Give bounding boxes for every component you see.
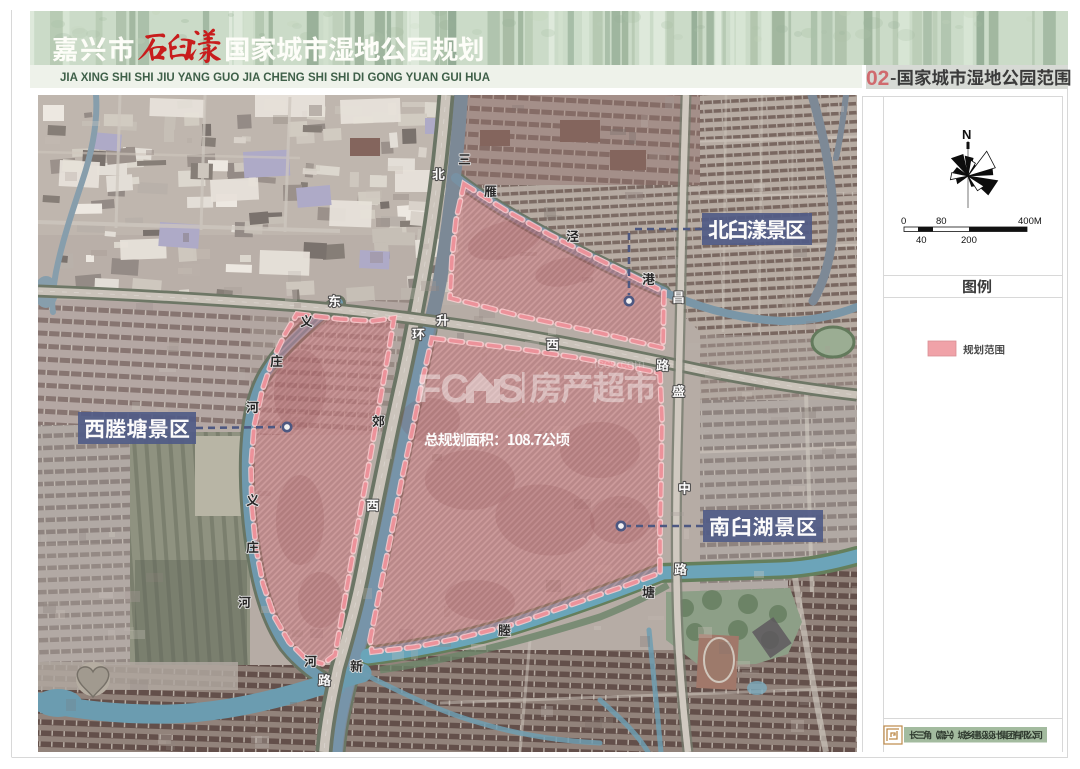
svg-text:-国家城市湿地公园范围: -国家城市湿地公园范围: [890, 65, 1071, 90]
svg-text:0: 0: [901, 216, 906, 227]
svg-text:200: 200: [961, 235, 977, 246]
svg-text:80: 80: [936, 216, 947, 227]
svg-text:40: 40: [916, 235, 927, 246]
svg-text:石臼漾: 石臼漾: [135, 27, 223, 64]
svg-text:N: N: [962, 127, 971, 142]
svg-text:国家城市湿地公园规划: 国家城市湿地公园规划: [224, 28, 484, 67]
svg-text:规划范围: 规划范围: [963, 343, 1005, 358]
svg-text:400M: 400M: [1018, 216, 1042, 227]
svg-text:长三角（嘉兴）城乡建设设计集团有限公司: 长三角（嘉兴）城乡建设设计集团有限公司: [909, 728, 1043, 742]
svg-text:图例: 图例: [962, 276, 992, 297]
svg-text:02: 02: [866, 67, 889, 90]
svg-text:嘉兴市: 嘉兴市: [52, 28, 136, 67]
svg-text:JIA XING SHI SHI JIU YANG GUO: JIA XING SHI SHI JIU YANG GUO JIA CHENG …: [60, 72, 490, 84]
